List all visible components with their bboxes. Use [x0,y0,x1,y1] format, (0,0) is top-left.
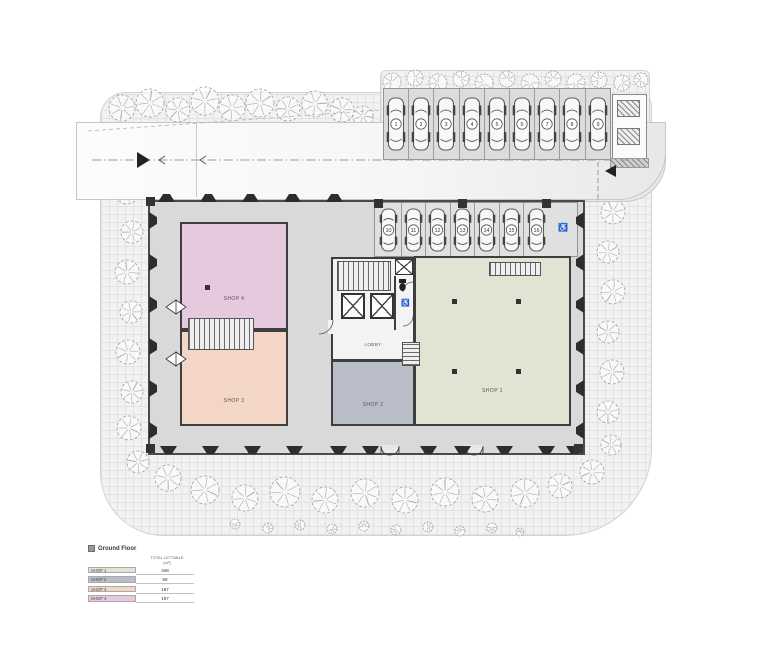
legend-title: Ground Floor [88,545,218,552]
elevator-icon [341,293,365,319]
legend-value: 187 [136,586,194,594]
parking-stall: 3 [434,89,459,159]
room-shop2-label: SHOP 2 [363,402,384,408]
legend-swatch: SHOP 2 [88,576,136,583]
utility-pad [610,158,649,168]
stall-number: 1 [395,122,398,128]
parking-stall: 6 [510,89,535,159]
car-icon: 11 [404,206,423,254]
column [516,369,521,374]
car-icon: 7 [537,95,557,153]
car-icon: 13 [453,206,472,254]
column [374,199,383,208]
shaft-icon [395,259,413,275]
car-icon: 9 [588,95,608,153]
stall-number: 8 [571,122,574,128]
legend-row: SHOP 4 197 [88,595,218,603]
parking-stall: 2 [409,89,434,159]
elevator-icon [370,293,394,319]
stall-number: 5 [495,122,498,128]
parking-stall: 11 [402,203,427,256]
car-icon: 12 [428,206,447,254]
parking-row-inner: 10 11 12 13 [374,202,578,257]
car-icon: 10 [379,206,398,254]
parking-stall: 5 [485,89,510,159]
stall-number: 11 [410,228,416,234]
car-icon: 15 [502,206,521,254]
utility-structure [612,94,647,162]
column [542,199,551,208]
legend-header: TOTAL LETTABLE [m²] [88,556,218,565]
stall-number: 7 [546,122,549,128]
parking-stall: 8 [560,89,585,159]
car-icon: 6 [512,95,532,153]
parking-stall: 10 [377,203,402,256]
column [146,197,155,206]
stall-number: 3 [445,122,448,128]
car-icon: 3 [436,95,456,153]
floor-plan-canvas: 1 2 3 4 5 [0,0,762,645]
column [205,285,210,290]
car-icon: 1 [386,95,406,153]
legend-swatch: SHOP 1 [88,567,136,574]
stall-number: 16 [533,228,539,234]
room-shop2: SHOP 2 [331,360,415,426]
column [452,299,457,304]
stall-number: 2 [420,122,423,128]
core-stair [337,261,391,291]
car-icon: 2 [411,95,431,153]
stall-number: 13 [459,228,465,234]
column [458,199,467,208]
core-partition [394,276,396,330]
parking-stall: 1 [384,89,409,159]
stall-number: 6 [521,122,524,128]
stall-number: 4 [470,122,473,128]
stall-number: 9 [597,122,600,128]
column [452,369,457,374]
wheelchair-icon: ♿ [401,300,410,308]
wheelchair-icon: ♿ [558,224,568,232]
ground-floor-icon [88,545,95,552]
parking-stall: 12 [426,203,451,256]
legend-value: 197 [136,595,194,603]
legend-header-line2: [m²] [138,561,196,566]
legend-row: SHOP 1 348 [88,567,218,575]
legend-swatch: SHOP 4 [88,595,136,602]
parking-stall: 16 [524,203,549,256]
room-shop4: SHOP 4 [180,222,288,330]
parking-stall: 9 [586,89,611,159]
room-shop1-label: SHOP 1 [482,388,503,394]
car-icon: 8 [562,95,582,153]
shop-stair [188,318,254,350]
legend-row: SHOP 3 187 [88,586,218,594]
parking-row-top: 1 2 3 4 5 [383,88,611,160]
room-shop3-label: SHOP 3 [224,398,245,404]
room-shop4-label: SHOP 4 [224,296,245,302]
utility-unit [617,100,640,117]
legend-row: SHOP 2 68 [88,576,218,584]
utility-unit [617,128,640,145]
car-icon: 14 [477,206,496,254]
parking-stall: 15 [500,203,525,256]
legend: Ground Floor TOTAL LETTABLE [m²] SHOP 1 … [88,545,218,603]
legend-value: 68 [136,576,194,584]
driveway-lane-divider [196,123,197,197]
parking-stall: 14 [475,203,500,256]
small-stair [402,342,420,366]
shop1-hatch [489,262,541,276]
legend-rows: SHOP 1 348SHOP 2 68SHOP 3 187SHOP 4 197 [88,567,218,604]
legend-title-text: Ground Floor [98,546,136,552]
stall-number: 14 [484,228,490,234]
room-shop1: SHOP 1 [414,256,571,426]
car-icon: 16 [527,206,546,254]
parking-stall: 4 [460,89,485,159]
column [516,299,521,304]
car-icon: 5 [487,95,507,153]
column [146,444,155,453]
stall-number: 15 [508,228,514,234]
parking-stall: 7 [535,89,560,159]
parking-stall: 13 [451,203,476,256]
legend-value: 348 [136,567,194,575]
stall-number: 12 [435,228,441,234]
car-icon: 4 [462,95,482,153]
stall-number: 10 [386,228,392,234]
column [574,444,583,453]
legend-swatch: SHOP 3 [88,586,136,593]
